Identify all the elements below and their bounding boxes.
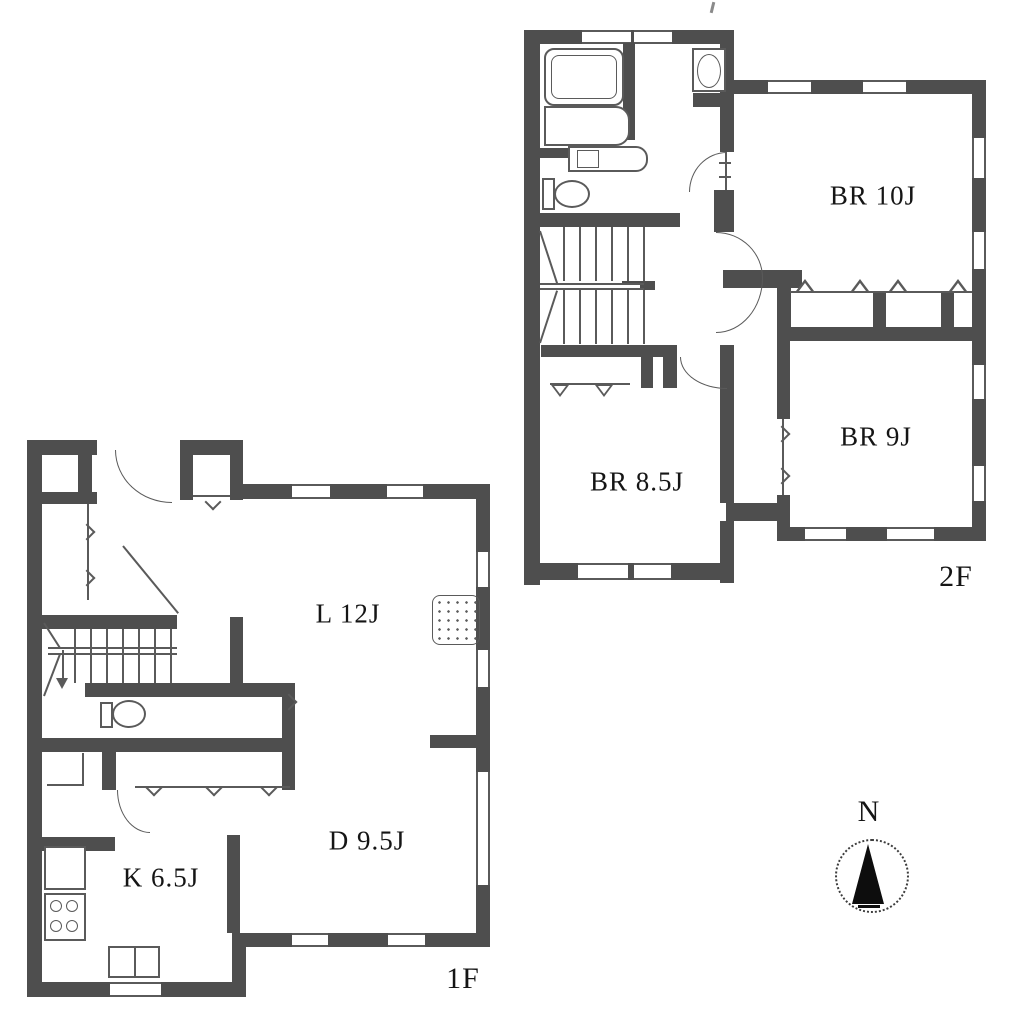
wall — [27, 440, 97, 455]
wall — [85, 683, 295, 697]
room-label-br10: BR 10J — [830, 181, 916, 212]
hanger-icon — [595, 385, 613, 397]
wall — [27, 492, 97, 504]
stair-arrow-shaft — [62, 650, 64, 680]
door-swing-mark — [774, 468, 791, 485]
burner — [50, 900, 62, 912]
stair-arrow-head — [56, 678, 68, 689]
window — [972, 138, 986, 178]
wall — [524, 213, 680, 227]
room-label-dining: D 9.5J — [329, 826, 406, 857]
hanger-icon — [551, 385, 569, 397]
floor-label-1f: 1F — [446, 962, 480, 996]
window — [582, 30, 631, 44]
room-label-br85: BR 8.5J — [590, 467, 684, 498]
window — [972, 466, 986, 501]
door-swing-mark — [79, 524, 96, 541]
wall — [476, 687, 490, 772]
stair-rail-line — [48, 653, 177, 655]
window — [292, 484, 330, 499]
floor-label-2f: 2F — [939, 560, 973, 594]
wall — [230, 617, 243, 690]
wall — [476, 484, 490, 552]
window — [972, 232, 986, 269]
room-label-living: L 12J — [316, 599, 381, 630]
door-arc — [716, 232, 763, 278]
burner — [66, 920, 78, 932]
window — [634, 563, 671, 580]
staircase-treads — [60, 629, 177, 683]
closet-rod-line — [790, 291, 972, 293]
window — [634, 30, 672, 44]
compass-base-tick — [858, 905, 880, 908]
window — [476, 552, 490, 587]
window — [578, 563, 628, 580]
hand-sink-bowl — [697, 54, 721, 88]
staircase-treads — [549, 227, 655, 281]
wall — [430, 735, 490, 748]
window — [972, 365, 986, 399]
wall — [27, 738, 293, 752]
window — [292, 933, 328, 947]
window — [863, 80, 906, 94]
washroom-line — [47, 784, 84, 786]
wall — [541, 345, 677, 357]
hanger-icon — [796, 279, 814, 291]
scan-artifact-tick — [710, 2, 716, 13]
wall — [102, 752, 116, 790]
wall — [230, 484, 490, 499]
wall — [777, 495, 790, 527]
burner — [50, 920, 62, 932]
vanity-unit — [544, 106, 630, 146]
wall — [27, 615, 177, 629]
door-arc — [716, 278, 763, 333]
entrance-door-arc — [115, 450, 172, 503]
window — [476, 772, 490, 828]
floorplan-canvas: BR 10J BR 9J BR 8.5J 2F — [0, 0, 1024, 1024]
toilet-bowl — [554, 180, 590, 208]
wall — [641, 345, 653, 388]
window — [476, 828, 490, 885]
wall — [714, 190, 734, 232]
hanger-icon — [889, 279, 907, 291]
wall — [227, 835, 240, 933]
toilet-bowl — [112, 700, 146, 728]
staircase-treads — [549, 290, 655, 344]
window — [387, 484, 423, 499]
window — [110, 982, 161, 997]
wall — [524, 30, 540, 585]
wall — [663, 345, 677, 388]
room-label-br9: BR 9J — [840, 422, 912, 453]
door-swing-mark — [206, 780, 223, 797]
window — [388, 933, 425, 947]
north-arrow-icon — [852, 844, 884, 904]
wall — [524, 563, 734, 580]
door-arc — [117, 790, 150, 833]
wash-basin — [577, 150, 599, 168]
kitchen-counter — [44, 846, 86, 890]
wall — [777, 341, 790, 419]
hanger-icon — [851, 279, 869, 291]
wall — [941, 293, 954, 329]
stair-rail-line — [48, 647, 177, 649]
wall — [693, 93, 734, 107]
window — [805, 527, 846, 541]
wall — [27, 440, 42, 997]
door-swing-mark — [79, 570, 96, 587]
wall — [873, 293, 886, 329]
wall — [777, 327, 986, 341]
hearth-unit — [432, 595, 480, 645]
stair-direction-line — [43, 654, 61, 697]
stove — [44, 893, 86, 941]
wall — [540, 148, 568, 158]
bathtub-inner — [551, 55, 617, 99]
door-arc — [680, 357, 727, 389]
wall — [180, 455, 193, 500]
door-swing-mark — [261, 780, 278, 797]
genkan-step-line — [122, 545, 179, 613]
window — [768, 80, 811, 94]
sink-divider-line — [134, 948, 136, 976]
wall — [233, 933, 490, 947]
compass-north-label: N — [858, 795, 881, 829]
window — [887, 527, 934, 541]
hanger-icon — [949, 279, 967, 291]
burner — [66, 900, 78, 912]
wall — [726, 80, 986, 94]
door-swing-mark — [774, 426, 791, 443]
window — [476, 650, 490, 687]
room-label-kitchen: K 6.5J — [123, 863, 200, 894]
door-arc — [689, 152, 727, 192]
washroom-line — [82, 753, 84, 786]
